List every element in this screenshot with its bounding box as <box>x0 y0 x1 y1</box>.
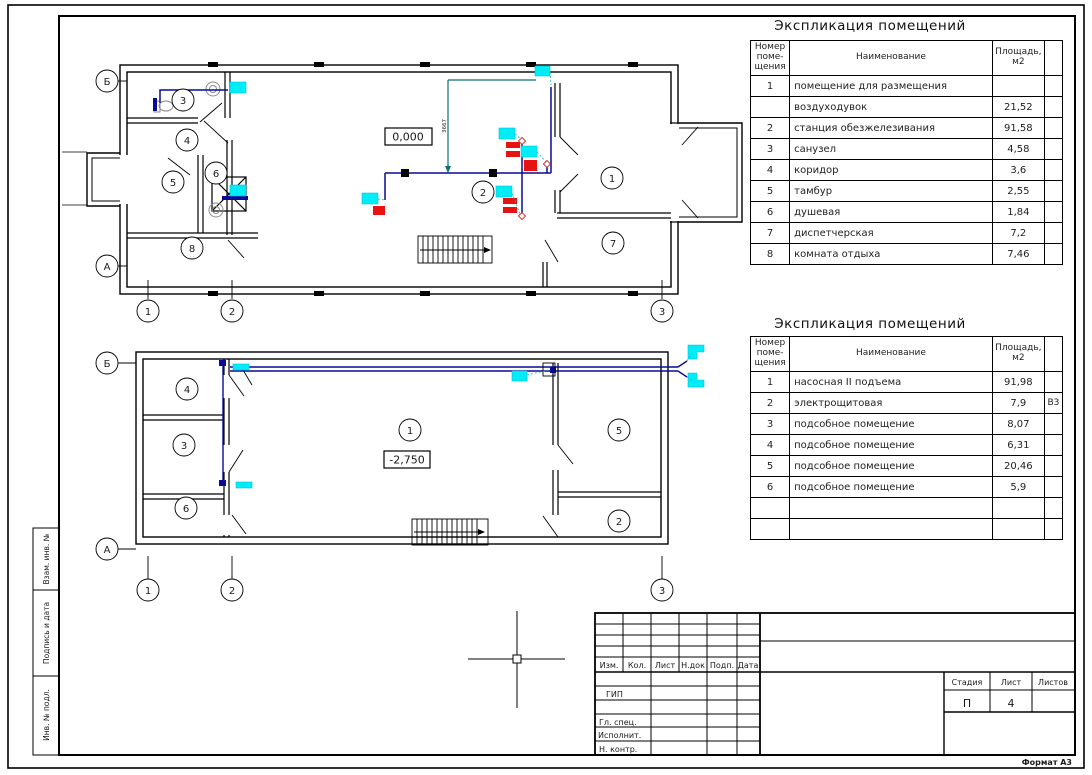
col-header-note <box>1044 41 1062 76</box>
axis-label: 1 <box>145 586 151 597</box>
explication-upper-title: Экспликация помещений <box>750 18 990 34</box>
table-row: 4коридор3,6 <box>751 160 1063 181</box>
room-number: 4 <box>184 136 190 147</box>
table-row: 4подсобное помещение6,31 <box>751 435 1063 456</box>
sheets-header: Листов <box>1038 678 1068 687</box>
col-header-note <box>1044 337 1062 372</box>
col-header-area: Площадь, м2 <box>992 337 1044 372</box>
table-row <box>751 519 1063 540</box>
role-gip: ГИП <box>606 690 623 699</box>
axis-label: Б <box>104 77 111 88</box>
explication-lower-title: Экспликация помещений <box>750 316 990 332</box>
room-number: 7 <box>610 239 616 250</box>
room-number: 3 <box>181 441 187 452</box>
stamp-inv-label: Инв. № подл. <box>42 689 51 741</box>
col-header-name: Наименование <box>790 41 993 76</box>
lower-stairs <box>412 519 488 545</box>
red-device-symbols <box>373 142 537 215</box>
title-block: Изм. Кол. Лист Н.док Подп. Дата ГИП Гл. … <box>595 613 1075 755</box>
rev-col-izm: Изм. <box>600 661 619 670</box>
stage-value: П <box>963 697 971 710</box>
table-row: 3подсобное помещение8,07 <box>751 414 1063 435</box>
stamp-vzam-label: Взам. инв. № <box>42 533 51 584</box>
table-row: 8комната отдыха7,46 <box>751 244 1063 265</box>
col-header-num: Номер поме- щения <box>751 337 790 372</box>
room-number: 2 <box>480 188 486 199</box>
table-row: 1помещение для размещения <box>751 76 1063 97</box>
room-number: 4 <box>184 385 190 396</box>
table-row: 2станция обезжелезивания91,58 <box>751 118 1063 139</box>
explication-upper-table: Номер поме- щения Наименование Площадь, … <box>750 40 1063 265</box>
table-row: 3санузел4,58 <box>751 139 1063 160</box>
role-nkontr: Н. контр. <box>599 745 637 754</box>
table-row: 7диспетчерская7,2 <box>751 223 1063 244</box>
cad-crosshair-cursor[interactable] <box>468 611 565 708</box>
col-header-num: Номер поме- щения <box>751 41 790 76</box>
lower-floor-plan: -2,750 Б А 1 2 3 4 3 6 <box>96 345 704 601</box>
upper-elevation-mark: 0,000 <box>385 128 432 145</box>
table-row: 5подсобное помещение20,46 <box>751 456 1063 477</box>
axis-label: Б <box>104 359 111 370</box>
room-number: 5 <box>170 178 176 189</box>
lower-plan-walls <box>136 352 668 545</box>
rev-col-ndok: Н.док <box>681 661 705 670</box>
drawing-sheet: Взам. инв. № Подпись и дата Инв. № подл. <box>0 0 1092 775</box>
rev-col-data: Дата <box>738 661 759 670</box>
axis-label: А <box>104 545 111 556</box>
axis-label: А <box>104 262 111 273</box>
rev-col-kol: Кол. <box>628 661 646 670</box>
room-number: 6 <box>213 169 219 180</box>
sheet-header: Лист <box>1001 678 1022 687</box>
axis-label: 2 <box>229 586 235 597</box>
axis-label: 3 <box>659 586 665 597</box>
table-row <box>751 498 1063 519</box>
upper-stairs <box>418 236 492 263</box>
room-number: 6 <box>183 504 189 515</box>
rev-col-list: Лист <box>655 661 676 670</box>
upper-floor-plan: 3667 <box>62 62 742 322</box>
room-number: 1 <box>609 174 615 185</box>
lower-elevation-mark: -2,750 <box>384 451 430 468</box>
rev-col-podp: Подп. <box>710 661 734 670</box>
room-number: 8 <box>189 244 195 255</box>
axis-label: 1 <box>145 307 151 318</box>
sheet-number-value: 4 <box>1008 697 1015 710</box>
table-row: 2электрощитовая7,9В3 <box>751 393 1063 414</box>
col-header-name: Наименование <box>790 337 993 372</box>
stamp-podpis-label: Подпись и дата <box>42 602 51 664</box>
table-row: 6подсобное помещение5,9 <box>751 477 1063 498</box>
lower-plan-wiring <box>219 345 704 488</box>
role-ispolnit: Исполнит. <box>598 731 641 740</box>
svg-text:0,000: 0,000 <box>392 131 424 144</box>
stage-header: Стадия <box>952 678 983 687</box>
axis-label: 2 <box>229 307 235 318</box>
axis-label: 3 <box>659 307 665 318</box>
table-row: 1насосная II подъема91,98 <box>751 372 1063 393</box>
explication-lower-table: Номер поме- щения Наименование Площадь, … <box>750 336 1063 540</box>
room-number: 3 <box>180 96 186 107</box>
table-row: воздуходувок21,52 <box>751 97 1063 118</box>
table-row: 6душевая1,84 <box>751 202 1063 223</box>
format-label: Формат А3 <box>1022 758 1072 767</box>
svg-text:-2,750: -2,750 <box>389 454 424 467</box>
table-row: 5тамбур2,55 <box>751 181 1063 202</box>
room-number: 2 <box>616 517 622 528</box>
col-header-area: Площадь, м2 <box>992 41 1044 76</box>
role-glspec: Гл. спец. <box>599 718 637 727</box>
room-number: 5 <box>616 426 622 437</box>
room-number: 1 <box>407 426 413 437</box>
margin-stamp-column: Взам. инв. № Подпись и дата Инв. № подл. <box>33 528 59 755</box>
riser-dimension-label: 3667 <box>442 119 448 133</box>
